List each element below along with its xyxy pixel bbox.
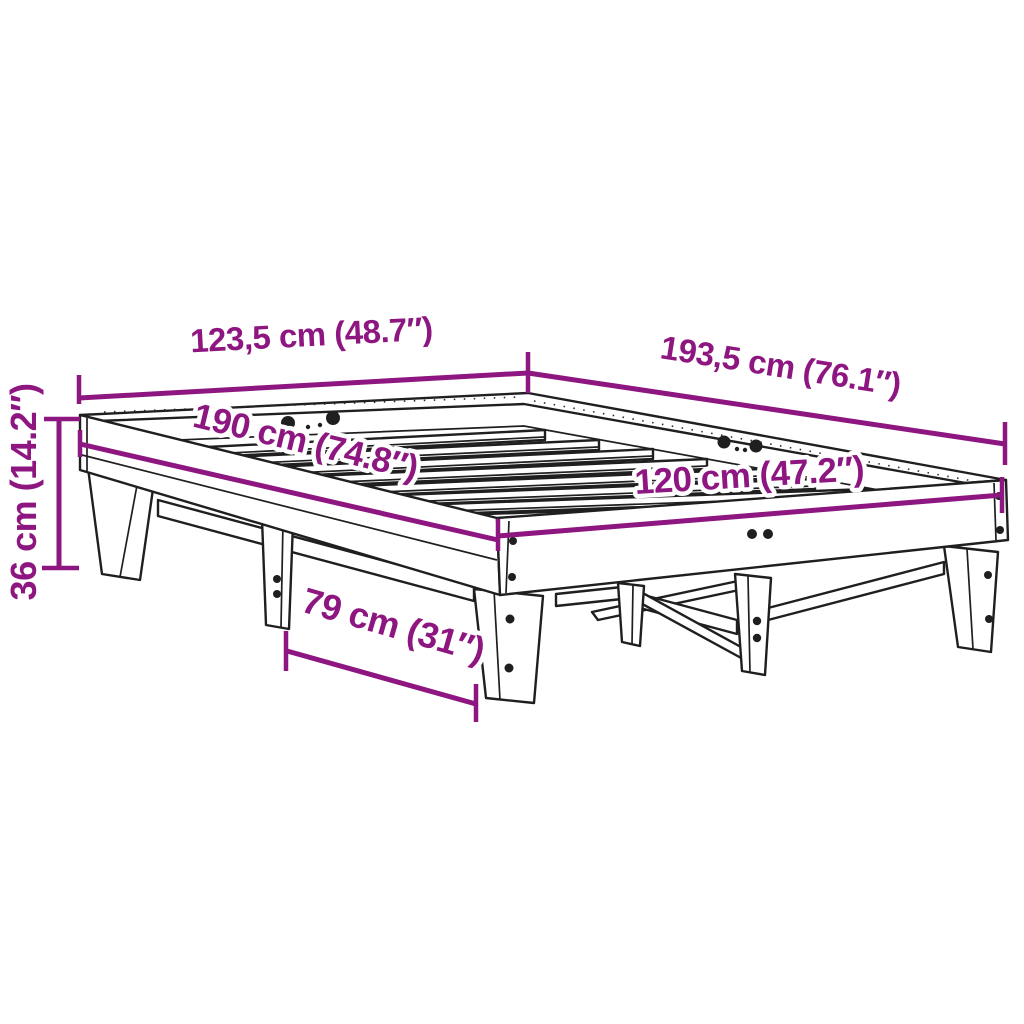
center-leg-small <box>618 583 644 646</box>
leg-right-corner <box>944 546 998 652</box>
center-leg-large <box>735 574 771 675</box>
label-outer-width: 123,5 cm (48.7″) <box>189 310 433 360</box>
screw <box>763 529 773 539</box>
center-beam-mid <box>556 587 622 606</box>
leg-side-middle <box>262 519 293 629</box>
screw <box>509 537 517 545</box>
rear-beam <box>768 562 944 620</box>
screw <box>508 573 516 581</box>
label-outer-length: 193,5 cm (76.1″) <box>658 328 903 403</box>
label-height: 36 cm (14.2″) <box>3 384 44 601</box>
dowel-dot <box>743 448 747 452</box>
screw <box>326 411 340 425</box>
screw <box>718 436 731 449</box>
screw <box>996 526 1004 534</box>
dowel-dot <box>735 447 739 451</box>
screw <box>750 440 763 453</box>
screw <box>747 529 757 539</box>
bed-frame-diagram-canvas: 123,5 cm (48.7″) 193,5 cm (76.1″) 190 cm… <box>0 0 1024 1024</box>
dimension-diagram: 123,5 cm (48.7″) 193,5 cm (76.1″) 190 cm… <box>0 0 1024 1024</box>
dimension-height <box>42 419 80 568</box>
